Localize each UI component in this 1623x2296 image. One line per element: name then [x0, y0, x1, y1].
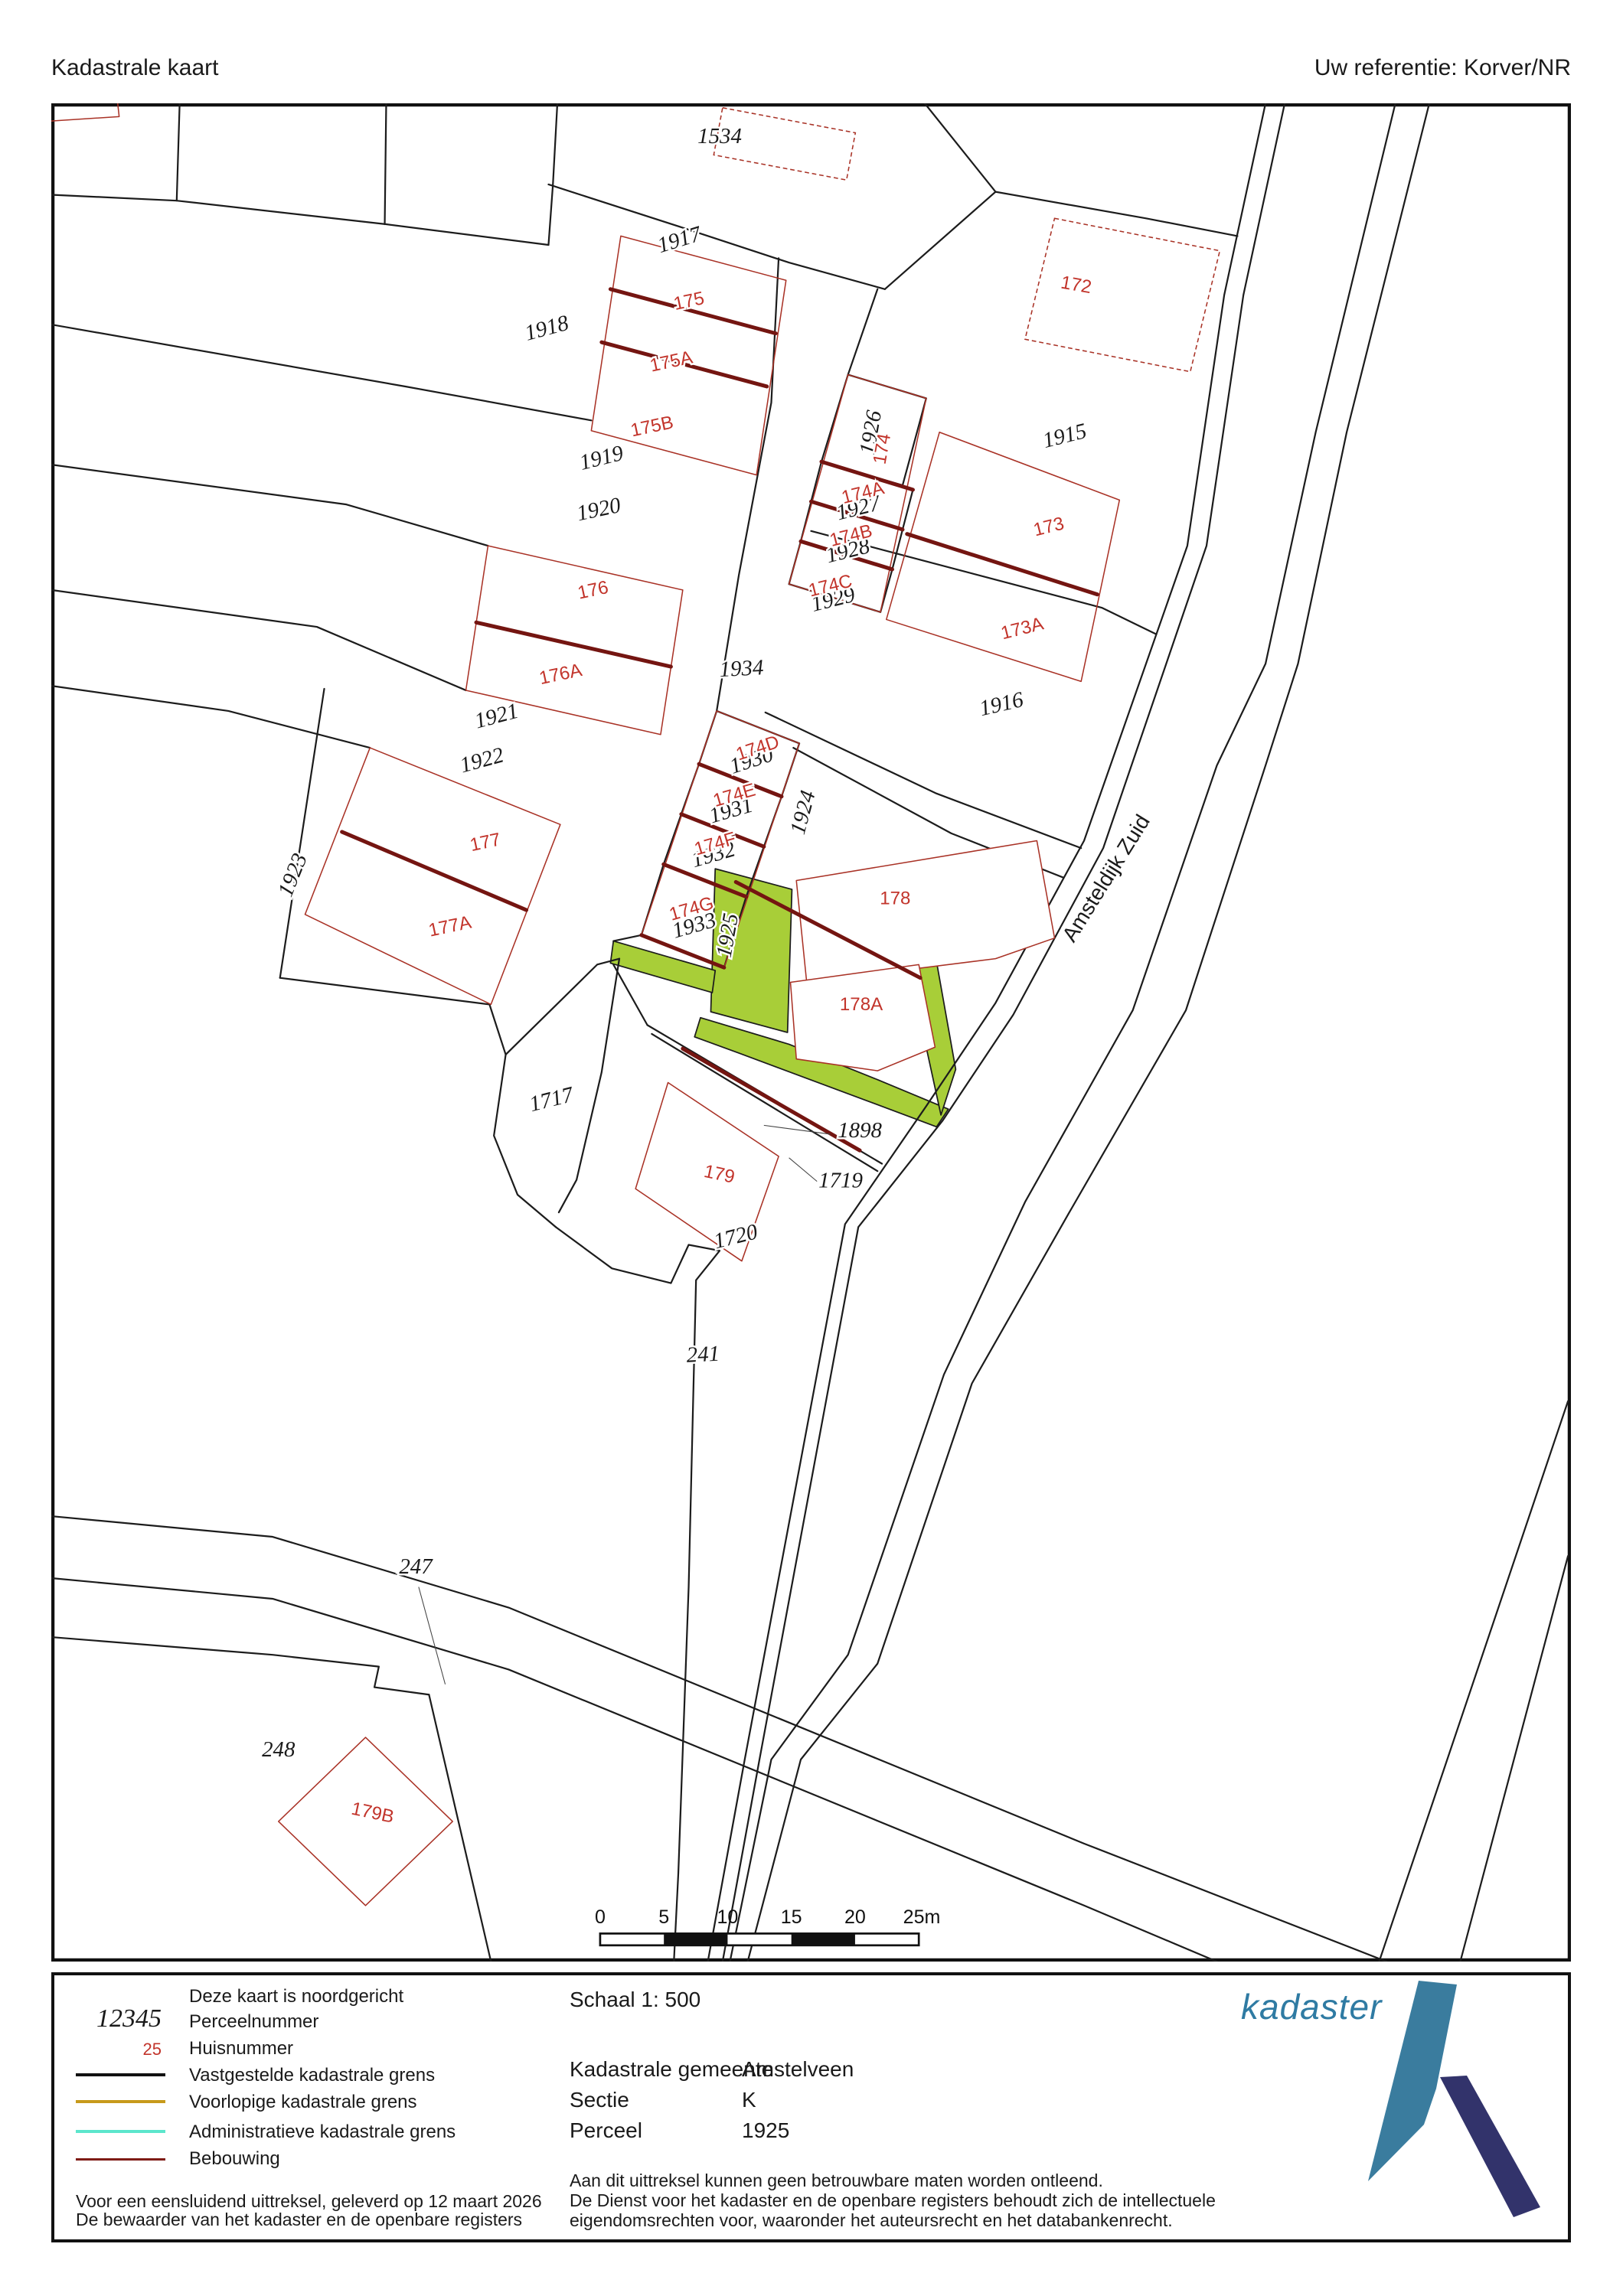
parcel-label-1919: 1919: [577, 441, 626, 475]
parcel-label-241: 241: [686, 1342, 720, 1368]
scale-text: Schaal 1: 500: [570, 1988, 700, 2012]
leader-lines: [419, 1125, 831, 1684]
row-label-perceel: Perceel: [570, 2118, 642, 2143]
house-label-173A: 173A: [999, 613, 1047, 644]
parcel-label-1915: 1915: [1040, 419, 1089, 453]
parcel-label-1720: 1720: [711, 1219, 760, 1254]
parcel-label-1920: 1920: [574, 493, 623, 526]
row-value-gemeente: Amstelveen: [742, 2057, 854, 2082]
legend-label-voorlopige: Voorlopige kadastrale grens: [189, 2092, 417, 2113]
house-label-175A: 175A: [648, 347, 695, 376]
parcel-label-1922: 1922: [457, 743, 506, 778]
legend-line-bebouwing: [76, 2158, 165, 2161]
disclaimer-line-3: eigendomsrechten voor, waaronder het aut…: [570, 2210, 1173, 2231]
house-label-178: 178: [880, 888, 910, 908]
legend-label-vastgestelde: Vastgestelde kadastrale grens: [189, 2065, 435, 2086]
row-label-sectie: Sectie: [570, 2088, 629, 2112]
legend-perceelnummer-label: Perceelnummer: [189, 2011, 318, 2033]
house-label-174: 174: [870, 432, 896, 465]
parcel-label-247: 247: [399, 1554, 433, 1579]
house-label-175: 175: [671, 288, 706, 315]
house-label-178A: 178A: [840, 994, 883, 1015]
scale-bar: 0 5 10 15 20 25m: [595, 1906, 940, 1945]
legend-perceelnummer-sample: 12345: [85, 2004, 162, 2033]
footer-line-1: Voor een eensluidend uittreksel, gelever…: [76, 2191, 542, 2212]
house-label-172: 172: [1060, 272, 1093, 298]
legend-line-vastgestelde: [76, 2073, 165, 2076]
info-panel: Deze kaart is noordgericht 12345 Perceel…: [51, 1972, 1571, 2242]
disclaimer-line-2: De Dienst voor het kadaster en de openba…: [570, 2190, 1216, 2211]
page-title: Kadastrale kaart: [51, 55, 218, 81]
scale-tick-0: 0: [595, 1906, 606, 1928]
scale-tick-10: 10: [717, 1906, 738, 1928]
parcel-label-1916: 1916: [977, 687, 1026, 721]
parcel-label-1717: 1717: [527, 1082, 576, 1117]
reference-text: Uw referentie: Korver/NR: [1314, 55, 1571, 81]
parcel-label-1924: 1924: [785, 788, 821, 837]
parcel-label-1923: 1923: [273, 850, 312, 901]
legend-huisnummer-label: Huisnummer: [189, 2038, 293, 2060]
legend-line-administratieve: [76, 2130, 165, 2133]
house-label-177: 177: [468, 829, 502, 856]
row-value-sectie: K: [742, 2088, 756, 2112]
footer-line-2: De bewaarder van het kadaster en de open…: [76, 2210, 522, 2230]
legend-label-bebouwing: Bebouwing: [189, 2148, 280, 2170]
map-canvas: 1534 1917 1918 1919 1920 1921 1922 1923 …: [51, 103, 1571, 1962]
house-label-179B: 179B: [349, 1799, 396, 1828]
scale-tick-20: 20: [844, 1906, 866, 1928]
disclaimer-line-1: Aan dit uittreksel kunnen geen betrouwba…: [570, 2170, 1103, 2191]
parcel-label-248: 248: [262, 1737, 296, 1762]
legend-huisnummer-sample: 25: [85, 2040, 162, 2060]
house-label-177A: 177A: [426, 912, 474, 941]
scale-tick-25m: 25m: [903, 1906, 941, 1928]
parcel-label-1921: 1921: [472, 699, 521, 734]
parcel-label-1898: 1898: [838, 1118, 882, 1143]
house-label-176A: 176A: [537, 660, 585, 689]
scale-tick-15: 15: [781, 1906, 802, 1928]
house-label-176: 176: [576, 577, 610, 604]
scale-tick-5: 5: [658, 1906, 669, 1928]
street-label-amsteldijk-zuid: Amsteldijk Zuid: [1057, 810, 1154, 946]
house-label-175B: 175B: [629, 412, 675, 441]
parcel-label-1934: 1934: [719, 655, 764, 682]
house-label-179: 179: [702, 1161, 736, 1188]
legend-label-administratieve: Administratieve kadastrale grens: [189, 2122, 456, 2143]
house-label-173: 173: [1031, 514, 1066, 541]
north-note: Deze kaart is noordgericht: [189, 1986, 403, 2007]
kadaster-logo-icon: [1358, 1980, 1542, 2219]
parcel-label-1534: 1534: [697, 124, 742, 148]
parcel-label-1918: 1918: [522, 311, 572, 346]
cadastral-map: 1534 1917 1918 1919 1920 1921 1922 1923 …: [51, 103, 1571, 1962]
legend-line-voorlopige: [76, 2100, 165, 2103]
parcel-label-1719: 1719: [818, 1168, 863, 1192]
row-value-perceel: 1925: [742, 2118, 789, 2143]
